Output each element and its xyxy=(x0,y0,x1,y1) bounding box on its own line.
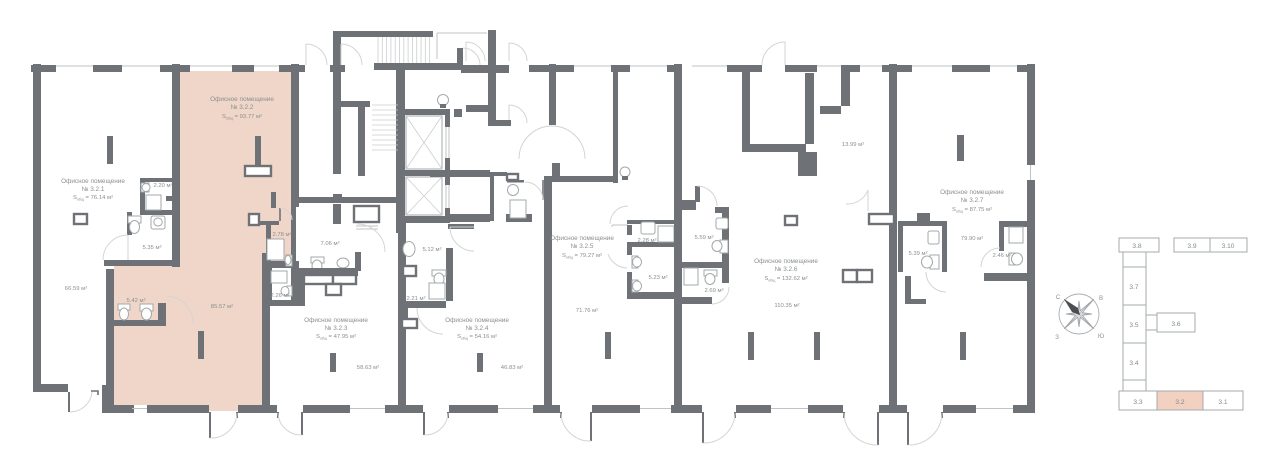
svg-text:5.23 м²: 5.23 м² xyxy=(648,275,667,281)
svg-text:Офисное помещение: Офисное помещение xyxy=(445,317,509,324)
svg-text:Офисное помещение: Офисное помещение xyxy=(210,96,274,103)
svg-text:66.59 м²: 66.59 м² xyxy=(65,286,87,292)
svg-text:З: З xyxy=(1055,335,1059,341)
svg-text:2.26 м²: 2.26 м² xyxy=(270,293,289,299)
svg-text:№ 3.2.3: № 3.2.3 xyxy=(325,325,348,332)
svg-text:С: С xyxy=(1056,295,1061,301)
svg-text:5.39 м²: 5.39 м² xyxy=(908,251,927,257)
svg-text:№ 3.2.4: № 3.2.4 xyxy=(466,325,489,332)
svg-text:Офисное помещение: Офисное помещение xyxy=(754,258,818,265)
svg-text:3.10: 3.10 xyxy=(1222,243,1235,250)
svg-text:110.35 м²: 110.35 м² xyxy=(774,303,799,309)
svg-text:3.1: 3.1 xyxy=(1218,399,1227,406)
svg-text:3.7: 3.7 xyxy=(1129,284,1138,291)
svg-text:Офисное помещение: Офисное помещение xyxy=(61,178,125,185)
svg-text:2.28 м²: 2.28 м² xyxy=(637,238,656,244)
svg-text:13.99 м²: 13.99 м² xyxy=(842,142,864,148)
svg-text:№ 3.2.7: № 3.2.7 xyxy=(961,197,984,204)
svg-text:Офисное помещение: Офисное помещение xyxy=(550,235,614,242)
svg-text:№ 3.2.1: № 3.2.1 xyxy=(82,186,105,193)
svg-text:46.83 м²: 46.83 м² xyxy=(501,365,523,371)
svg-text:3.5: 3.5 xyxy=(1129,322,1138,329)
svg-text:85.57 м²: 85.57 м² xyxy=(211,304,233,310)
svg-text:№ 3.2.6: № 3.2.6 xyxy=(775,266,798,273)
svg-text:3.6: 3.6 xyxy=(1171,321,1180,328)
svg-text:3.9: 3.9 xyxy=(1187,243,1196,250)
svg-text:Офисное помещение: Офисное помещение xyxy=(940,189,1004,196)
svg-text:79.90 м²: 79.90 м² xyxy=(961,236,983,242)
svg-text:2.21 м²: 2.21 м² xyxy=(406,296,425,302)
svg-text:2.69 м²: 2.69 м² xyxy=(704,288,723,294)
svg-text:В: В xyxy=(1099,296,1103,302)
svg-text:№ 3.2.5: № 3.2.5 xyxy=(571,243,594,250)
svg-text:5.59 м²: 5.59 м² xyxy=(694,235,713,241)
svg-text:2.20 м²: 2.20 м² xyxy=(153,183,172,189)
svg-text:3.2: 3.2 xyxy=(1175,399,1184,406)
svg-text:71.76 м²: 71.76 м² xyxy=(576,308,598,314)
svg-text:Офисное помещение: Офисное помещение xyxy=(304,317,368,324)
svg-text:3.8: 3.8 xyxy=(1132,243,1141,250)
svg-text:5.42 м²: 5.42 м² xyxy=(126,298,145,304)
svg-text:Ю: Ю xyxy=(1098,334,1104,340)
svg-text:58.63 м²: 58.63 м² xyxy=(357,365,379,371)
svg-text:3.3: 3.3 xyxy=(1133,399,1142,406)
svg-text:2.46 м²: 2.46 м² xyxy=(992,253,1011,259)
svg-text:5.12 м²: 5.12 м² xyxy=(422,247,441,253)
svg-text:7.06 м²: 7.06 м² xyxy=(320,241,339,247)
svg-text:№ 3.2.2: № 3.2.2 xyxy=(231,104,254,111)
svg-text:3.4: 3.4 xyxy=(1129,360,1138,367)
svg-text:2.78 м²: 2.78 м² xyxy=(272,232,291,238)
svg-text:5.35 м²: 5.35 м² xyxy=(142,245,161,251)
